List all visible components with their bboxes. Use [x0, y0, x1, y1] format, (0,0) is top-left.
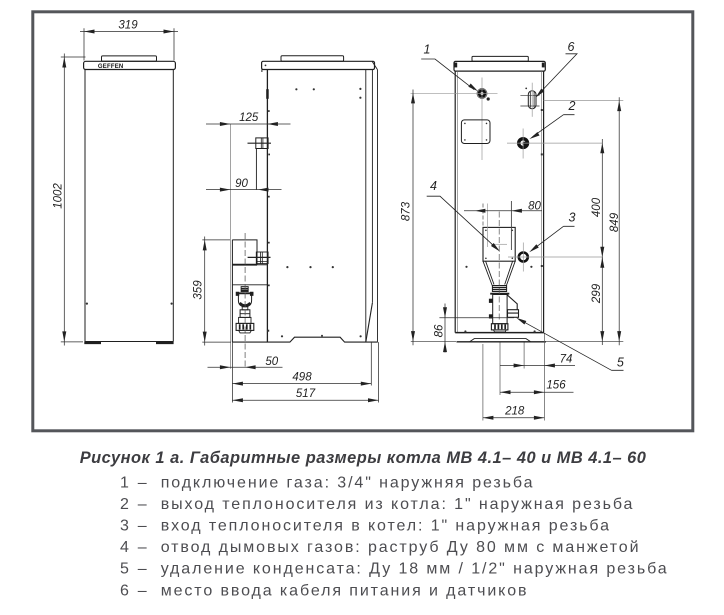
svg-text:4: 4	[430, 179, 437, 193]
svg-text:3 –: 3 –	[120, 518, 147, 535]
svg-text:удаление конденсата: Ду 18 мм: удаление конденсата: Ду 18 мм / 1/2" нар…	[161, 561, 669, 578]
svg-text:218: 218	[504, 405, 525, 417]
svg-text:849: 849	[609, 212, 621, 232]
svg-text:5 –: 5 –	[120, 561, 147, 578]
svg-text:место ввода кабеля питания и д: место ввода кабеля питания и датчиков	[161, 582, 529, 599]
svg-text:2: 2	[568, 99, 576, 113]
svg-text:1002: 1002	[52, 183, 64, 209]
svg-text:80: 80	[528, 200, 541, 212]
svg-text:125: 125	[239, 112, 259, 124]
svg-text:6 –: 6 –	[120, 582, 147, 599]
svg-text:50: 50	[265, 356, 278, 368]
svg-text:498: 498	[292, 371, 312, 383]
svg-text:299: 299	[591, 283, 603, 304]
svg-text:1: 1	[424, 43, 431, 57]
svg-text:1 –: 1 –	[120, 474, 147, 491]
svg-text:319: 319	[118, 20, 138, 32]
svg-text:подключение газа: 3/4" наружня: подключение газа: 3/4" наружняя резьба	[161, 474, 535, 491]
svg-text:выход теплоносителя из котла:: выход теплоносителя из котла: 1" наружна…	[161, 496, 635, 513]
svg-text:873: 873	[400, 201, 412, 221]
svg-text:400: 400	[591, 197, 603, 217]
svg-text:156: 156	[546, 380, 566, 392]
svg-text:359: 359	[193, 280, 205, 300]
svg-text:2 –: 2 –	[120, 496, 147, 513]
svg-text:GEFFEN: GEFFEN	[98, 64, 124, 70]
svg-text:6: 6	[568, 40, 575, 54]
svg-text:Рисунок 1 а. Габаритные размер: Рисунок 1 а. Габаритные размеры котла МВ…	[80, 449, 647, 467]
svg-text:4 –: 4 –	[120, 539, 147, 556]
svg-text:86: 86	[433, 324, 445, 337]
svg-text:74: 74	[560, 353, 573, 365]
svg-text:вход теплоносителя в котел: 1": вход теплоносителя в котел: 1" наружная …	[161, 518, 611, 535]
svg-text:3: 3	[569, 211, 576, 225]
svg-text:отвод дымовых газов: раструб Д: отвод дымовых газов: раструб Ду 80 мм с …	[161, 539, 641, 556]
svg-text:5: 5	[617, 355, 624, 369]
svg-text:517: 517	[296, 388, 316, 400]
svg-text:90: 90	[235, 178, 248, 190]
